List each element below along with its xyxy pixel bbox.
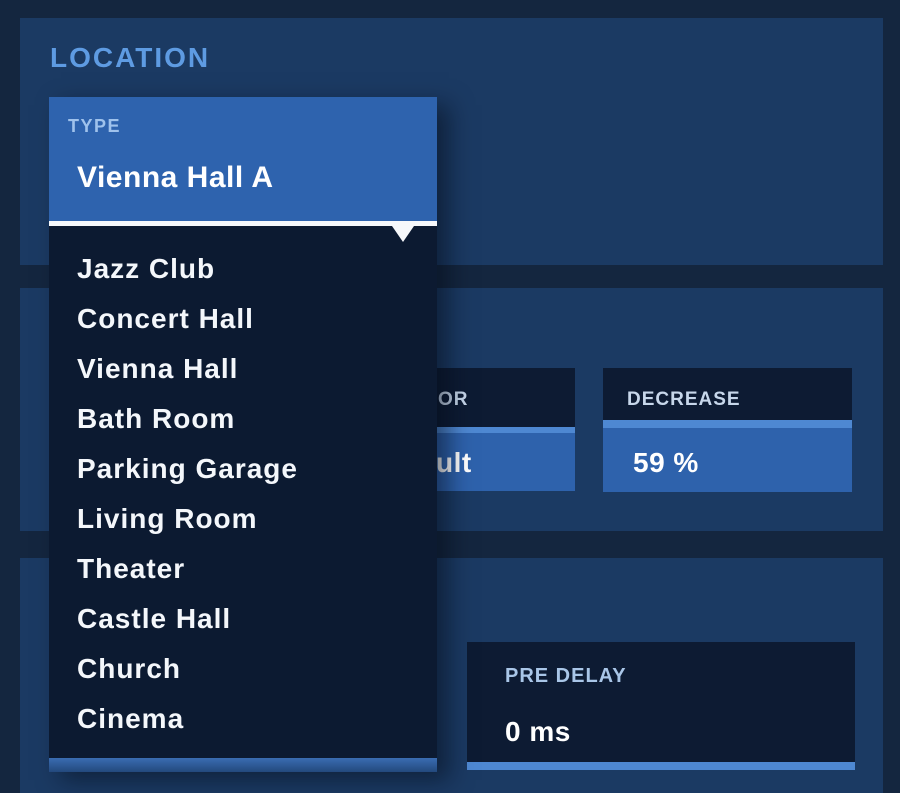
plugin-panel: LOCATION OR ult DECREASE 59 % PRE DELAY … [0, 0, 900, 793]
dropdown-option[interactable]: Castle Hall [49, 594, 437, 644]
clipped-control-value: ult [436, 447, 472, 479]
decrease-header: DECREASE [603, 368, 852, 420]
pre-delay-label: PRE DELAY [505, 665, 627, 688]
pre-delay-box[interactable]: PRE DELAY 0 ms [467, 642, 855, 762]
dropdown-option[interactable]: Theater [49, 544, 437, 594]
type-dropdown-label: TYPE [68, 116, 121, 137]
chevron-down-icon [392, 226, 414, 242]
dropdown-option[interactable]: Church [49, 644, 437, 694]
dropdown-option[interactable]: Living Room [49, 494, 437, 544]
type-dropdown: TYPE Vienna Hall A Jazz Club Concert Hal… [49, 97, 437, 772]
pre-delay-value: 0 ms [505, 716, 571, 748]
dropdown-bottom-strip [49, 758, 437, 772]
pre-delay-underline-strip [467, 762, 855, 770]
dropdown-option[interactable]: Vienna Hall [49, 344, 437, 394]
dropdown-option[interactable]: Parking Garage [49, 444, 437, 494]
decrease-value: 59 % [633, 447, 699, 479]
dropdown-option[interactable]: Bath Room [49, 394, 437, 444]
decrease-value-box[interactable]: 59 % [603, 428, 852, 492]
type-dropdown-selected-value: Vienna Hall A [77, 161, 274, 195]
clipped-control-label: OR [438, 389, 469, 411]
dropdown-option[interactable]: Concert Hall [49, 294, 437, 344]
type-dropdown-header[interactable]: TYPE Vienna Hall A [49, 97, 437, 221]
decrease-control: DECREASE 59 % [603, 368, 852, 492]
pre-delay-control: PRE DELAY 0 ms [467, 642, 855, 770]
location-heading: LOCATION [50, 42, 210, 74]
type-dropdown-option-list: Jazz Club Concert Hall Vienna Hall Bath … [49, 226, 437, 758]
decrease-highlight-strip [603, 420, 852, 428]
dropdown-option[interactable]: Jazz Club [49, 244, 437, 294]
dropdown-option[interactable]: Cinema [49, 694, 437, 744]
decrease-label: DECREASE [627, 389, 741, 411]
